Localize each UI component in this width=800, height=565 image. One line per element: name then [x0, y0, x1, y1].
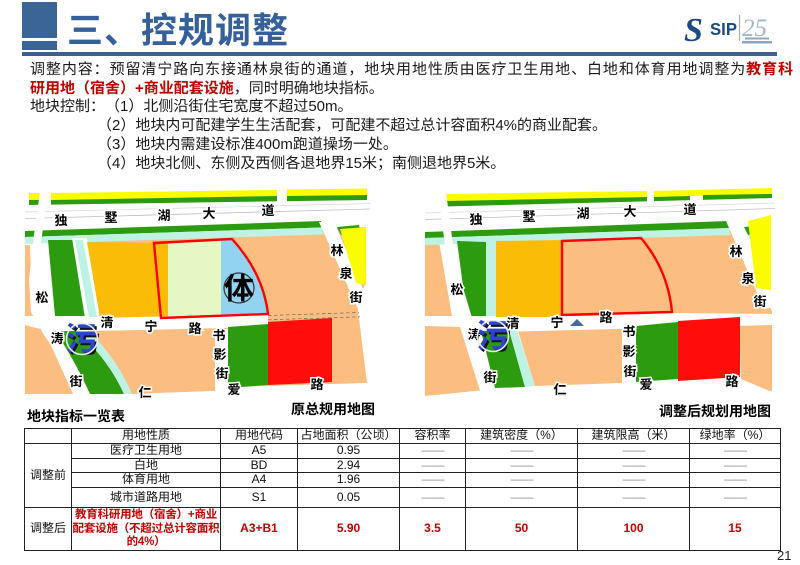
svg-text:大: 大 — [202, 206, 215, 221]
svg-text:林: 林 — [729, 244, 742, 259]
svg-text:清: 清 — [100, 315, 113, 330]
svg-text:路: 路 — [310, 377, 323, 392]
svg-text:街: 街 — [483, 370, 496, 385]
svg-text:松: 松 — [35, 290, 48, 305]
svg-text:路: 路 — [599, 310, 612, 325]
svg-text:湖: 湖 — [576, 206, 589, 221]
svg-text:街: 街 — [349, 290, 362, 305]
svg-text:书: 书 — [212, 328, 225, 343]
svg-text:书: 书 — [622, 324, 635, 339]
svg-text:SIP: SIP — [710, 19, 737, 39]
svg-text:湖: 湖 — [157, 208, 170, 223]
svg-text:爱: 爱 — [639, 377, 652, 392]
svg-text:影: 影 — [622, 344, 635, 359]
svg-text:泉: 泉 — [741, 271, 754, 286]
svg-text:路: 路 — [188, 321, 201, 336]
svg-text:涛: 涛 — [50, 331, 63, 346]
svg-text:S: S — [684, 12, 703, 49]
svg-text:大: 大 — [623, 204, 636, 219]
svg-text:仁: 仁 — [553, 382, 566, 397]
svg-text:道: 道 — [683, 202, 696, 217]
svg-text:影: 影 — [213, 347, 226, 362]
svg-text:独: 独 — [54, 213, 67, 228]
svg-text:路: 路 — [725, 374, 738, 389]
svg-text:松: 松 — [450, 282, 463, 297]
svg-text:污: 污 — [65, 321, 98, 358]
svg-text:污: 污 — [476, 318, 509, 355]
svg-text:道: 道 — [261, 203, 274, 218]
svg-text:林: 林 — [330, 243, 343, 258]
svg-text:宁: 宁 — [550, 315, 563, 330]
svg-text:爱: 爱 — [227, 382, 240, 397]
svg-text:墅: 墅 — [522, 209, 535, 224]
svg-text:独: 独 — [469, 212, 482, 227]
svg-text:体: 体 — [224, 273, 254, 306]
svg-text:墅: 墅 — [104, 210, 117, 225]
svg-text:街: 街 — [69, 374, 82, 389]
svg-text:仁: 仁 — [138, 385, 151, 400]
svg-text:街: 街 — [753, 294, 766, 309]
svg-text:宁: 宁 — [144, 319, 157, 334]
svg-text:街: 街 — [215, 366, 228, 381]
svg-text:泉: 泉 — [339, 266, 352, 281]
svg-text:街: 街 — [623, 364, 636, 379]
